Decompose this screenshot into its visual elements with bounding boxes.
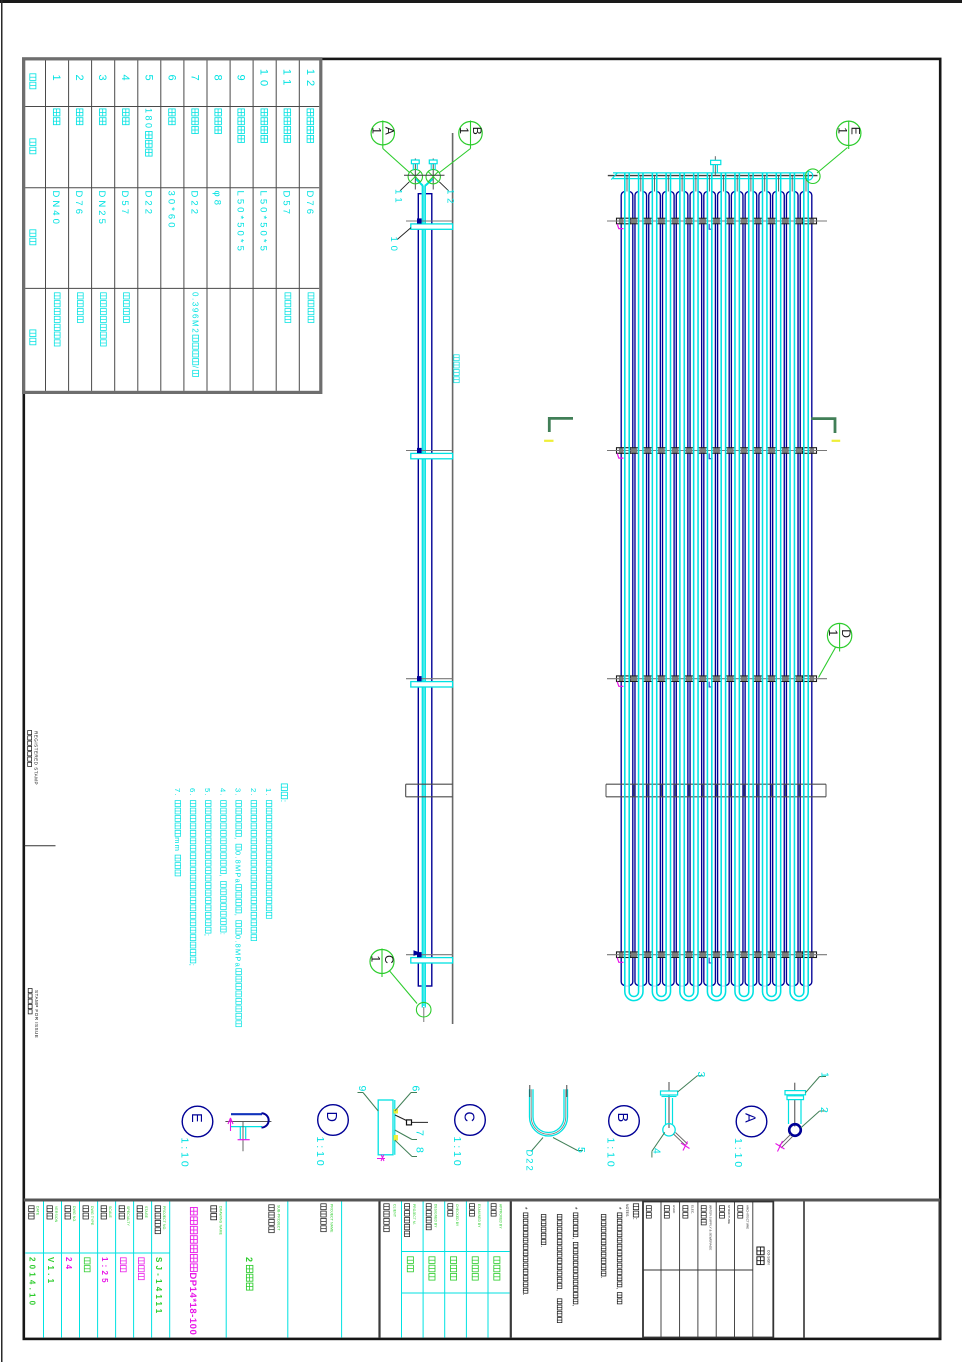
svg-text:D22: D22	[188, 191, 199, 218]
svg-text:9: 9	[356, 1086, 368, 1095]
svg-text:1: 1	[819, 1072, 831, 1081]
svg-text:1:10: 1:10	[605, 1138, 617, 1170]
svg-text::: :	[218, 933, 227, 936]
svg-text:7: 7	[188, 75, 200, 86]
svg-text:.: .	[599, 1277, 606, 1279]
svg-text:1: 1	[826, 630, 840, 640]
svg-text:1: 1	[370, 127, 384, 137]
svg-text:*: *	[521, 1207, 528, 1210]
svg-text:STAMP FOR ISSUE: STAMP FOR ISSUE	[34, 990, 39, 1038]
svg-text:1.: 1.	[264, 788, 273, 797]
svg-text:D22: D22	[142, 191, 153, 218]
svg-text:12: 12	[445, 189, 456, 207]
svg-text:EXAMINED BY: EXAMINED BY	[477, 1204, 481, 1228]
svg-text:SJ-14111: SJ-14111	[154, 1257, 163, 1316]
svg-text:,: ,	[218, 874, 227, 877]
svg-text:C: C	[461, 1112, 477, 1127]
svg-text:ELEC.: ELEC.	[690, 1205, 694, 1214]
svg-text:3: 3	[695, 1072, 707, 1081]
svg-text:2014.10: 2014.10	[28, 1257, 37, 1308]
svg-text:CHECKED BY: CHECKED BY	[455, 1204, 459, 1227]
svg-text:D57: D57	[119, 191, 130, 218]
svg-text:2: 2	[73, 75, 85, 86]
svg-text:DN25: DN25	[96, 191, 107, 227]
svg-text:D: D	[839, 629, 853, 641]
svg-text:12: 12	[304, 69, 316, 91]
svg-text:*: *	[615, 1207, 622, 1210]
svg-text:8: 8	[212, 75, 224, 86]
svg-text:0.8MPa: 0.8MPa	[234, 935, 243, 968]
svg-text:1:25: 1:25	[100, 1257, 109, 1286]
svg-text:24: 24	[64, 1257, 73, 1272]
svg-text:11: 11	[281, 69, 293, 90]
svg-text:4.: 4.	[218, 788, 227, 797]
svg-text:DESIGNED BY: DESIGNED BY	[434, 1204, 438, 1228]
svg-text:D76: D76	[73, 191, 84, 218]
svg-text:STRUCTURE: STRUCTURE	[727, 1205, 731, 1224]
svg-text:;: ;	[188, 964, 197, 967]
svg-text:D22: D22	[524, 1150, 535, 1173]
svg-text:7: 7	[414, 1130, 426, 1139]
svg-text:B: B	[614, 1113, 630, 1127]
svg-text:5.: 5.	[203, 788, 212, 797]
svg-text:E: E	[188, 1113, 204, 1127]
svg-text:.: .	[521, 1294, 528, 1296]
svg-text:APPROVED BY: APPROVED BY	[499, 1204, 503, 1229]
svg-text:6: 6	[165, 75, 177, 86]
svg-text:180: 180	[143, 108, 153, 131]
svg-text:PROJECT NO.: PROJECT NO.	[162, 1206, 166, 1231]
svg-text:,: ,	[555, 1289, 562, 1291]
svg-text:6: 6	[410, 1086, 422, 1095]
svg-text:1: 1	[457, 127, 471, 137]
svg-text:φ8: φ8	[212, 191, 223, 209]
svg-text:2: 2	[818, 1107, 830, 1116]
svg-text:1:10: 1:10	[732, 1138, 744, 1170]
svg-text:mm: mm	[173, 837, 182, 852]
svg-text:PROJECT M.: PROJECT M.	[412, 1204, 416, 1225]
svg-text:10: 10	[258, 69, 270, 91]
svg-text:NOTES: NOTES	[625, 1204, 629, 1217]
svg-text:,: ,	[571, 1305, 578, 1307]
svg-text:REGISTERED STAMP: REGISTERED STAMP	[33, 731, 38, 785]
svg-text:0.8MPa: 0.8MPa	[234, 851, 243, 884]
svg-text:,: ,	[234, 914, 243, 917]
svg-text:D76: D76	[304, 191, 315, 218]
svg-text:;: ;	[203, 934, 212, 937]
svg-text:1:10: 1:10	[314, 1137, 326, 1169]
svg-text:4: 4	[119, 75, 131, 86]
svg-text:1:10: 1:10	[179, 1138, 191, 1170]
svg-text:8: 8	[414, 1147, 426, 1156]
svg-text::: :	[631, 1218, 640, 1221]
svg-text:1: 1	[50, 75, 62, 86]
svg-text:L50*50*5: L50*50*5	[258, 191, 269, 254]
svg-text:*: *	[571, 1207, 578, 1210]
svg-text:1:10: 1:10	[451, 1137, 463, 1169]
svg-text:DRAWING NAME: DRAWING NAME	[219, 1206, 223, 1236]
svg-text:STAGE: STAGE	[144, 1206, 148, 1219]
svg-text:D57: D57	[281, 191, 292, 218]
svg-text:1: 1	[835, 127, 849, 137]
svg-text:3: 3	[96, 75, 108, 86]
svg-text:.: .	[539, 1245, 546, 1247]
svg-text:,: ,	[571, 1237, 578, 1239]
svg-text:DWG TYPE: DWG TYPE	[90, 1206, 94, 1226]
svg-text:2.: 2.	[249, 788, 258, 797]
svg-text:SUB-PROJECT: SUB-PROJECT	[277, 1205, 281, 1231]
svg-text:,: ,	[234, 837, 243, 840]
svg-text:DP14*18-100: DP14*18-100	[187, 1272, 198, 1335]
svg-text:CO-SIGN: CO-SIGN	[767, 1250, 771, 1265]
svg-text:6.: 6.	[188, 788, 197, 797]
svg-text:PROJECT NAME: PROJECT NAME	[330, 1204, 334, 1233]
svg-text:2: 2	[244, 1257, 254, 1265]
svg-text:SCALE: SCALE	[108, 1206, 112, 1219]
svg-text:9: 9	[235, 75, 247, 86]
svg-text:A: A	[742, 1113, 758, 1127]
svg-text:5: 5	[575, 1147, 587, 1156]
svg-text:HVAC: HVAC	[672, 1205, 676, 1214]
svg-text:C: C	[382, 955, 396, 967]
svg-text:D: D	[323, 1112, 339, 1127]
svg-text:7.: 7.	[173, 788, 182, 797]
svg-text:E: E	[848, 127, 862, 138]
svg-text:11: 11	[393, 189, 404, 206]
svg-text:,: ,	[615, 1288, 622, 1290]
svg-text:V1.1: V1.1	[46, 1257, 55, 1286]
svg-text:DWG NO.: DWG NO.	[72, 1206, 76, 1222]
svg-text:A: A	[383, 127, 397, 138]
svg-text:DATE: DATE	[36, 1206, 40, 1216]
svg-text:4: 4	[651, 1148, 663, 1157]
svg-text:1: 1	[369, 956, 383, 966]
svg-text:L50*50*5: L50*50*5	[235, 191, 246, 254]
svg-text:10: 10	[388, 237, 399, 255]
svg-text:/: /	[190, 366, 199, 370]
svg-text:VERSION: VERSION	[54, 1206, 58, 1223]
svg-text:B: B	[470, 127, 484, 138]
svg-text:0.396M2: 0.396M2	[190, 292, 199, 334]
svg-text:30*60: 30*60	[165, 191, 176, 231]
svg-text:5: 5	[142, 75, 154, 86]
svg-text:ARCHITECTURE: ARCHITECTURE	[745, 1205, 749, 1229]
svg-text:SPECIALTY: SPECIALTY	[126, 1206, 130, 1227]
svg-text:WATER SUPPLY & SEWERAGE: WATER SUPPLY & SEWERAGE	[709, 1205, 713, 1250]
svg-text:DN40: DN40	[50, 191, 61, 227]
svg-text:3.: 3.	[234, 788, 243, 797]
svg-text::: :	[279, 800, 289, 805]
svg-text:CLIENT: CLIENT	[393, 1204, 397, 1217]
